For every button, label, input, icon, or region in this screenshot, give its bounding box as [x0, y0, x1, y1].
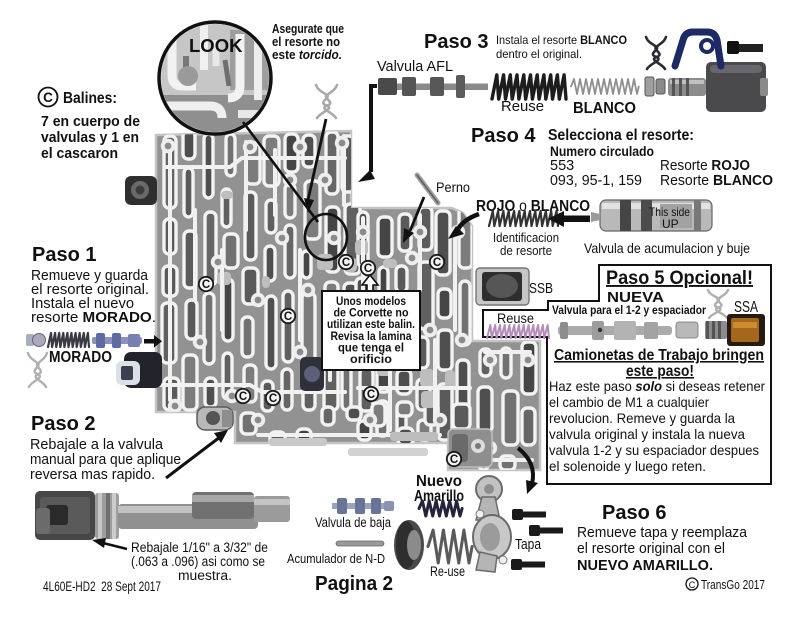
svg-text:el solenoide y luego reten.: el solenoide y luego reten. [549, 458, 706, 474]
svg-text:Resorte ROJO: Resorte ROJO [660, 158, 750, 174]
svg-text:dentro el original.: dentro el original. [496, 47, 582, 61]
svg-text:Camionetas de Trabajo bringen: Camionetas de Trabajo bringen [554, 347, 764, 364]
svg-text:Tapa: Tapa [515, 537, 542, 553]
svg-text:SSB: SSB [529, 280, 553, 297]
svg-text:valvula original y instala la: valvula original y instala la nueva [549, 426, 745, 442]
svg-text:valvula 1-2 y su espaciador de: valvula 1-2 y su espaciador despues [549, 442, 759, 458]
svg-text:TransGo 2017: TransGo 2017 [701, 578, 765, 592]
svg-text:Paso 1: Paso 1 [32, 244, 96, 266]
svg-text:que tenga el: que tenga el [338, 342, 404, 354]
svg-text:orificio: orificio [350, 354, 392, 366]
svg-text:BLANCO: BLANCO [573, 100, 636, 117]
svg-text:Balines:: Balines: [63, 90, 117, 107]
svg-text:reversa mas rapido.: reversa mas rapido. [30, 467, 155, 483]
svg-text:MORADO: MORADO [49, 349, 112, 366]
svg-text:Unos modelos: Unos modelos [336, 296, 406, 308]
svg-text:Asegurate que: Asegurate que [272, 22, 344, 36]
svg-text:Paso 4: Paso 4 [471, 125, 536, 147]
svg-text:Reuse: Reuse [501, 98, 544, 115]
svg-text:de resorte: de resorte [500, 243, 552, 258]
svg-text:Paso 5 Opcional!: Paso 5 Opcional! [606, 268, 753, 289]
svg-text:C: C [269, 393, 277, 405]
svg-text:el cambio de M1 a cualquier: el cambio de M1 a cualquier [549, 394, 709, 410]
svg-text:C: C [342, 257, 350, 269]
svg-text:Instala el resorte BLANCO: Instala el resorte BLANCO [496, 33, 627, 47]
svg-text:Valvula para el 1-2 y espaciad: Valvula para el 1-2 y espaciador [552, 303, 706, 317]
svg-text:Acumulador de N-D: Acumulador de N-D [287, 551, 385, 566]
svg-text:Reuse: Reuse [497, 310, 534, 326]
svg-text:7 en cuerpo de: 7 en cuerpo de [41, 113, 140, 130]
svg-text:Valvula de baja: Valvula de baja [315, 515, 391, 530]
svg-text:Numero circulado: Numero circulado [550, 144, 654, 159]
svg-text:el resorte original con el: el resorte original con el [577, 540, 725, 557]
svg-text:Rebajale 1/16" a 3/32" de: Rebajale 1/16" a 3/32" de [131, 540, 268, 555]
svg-text:muestra.: muestra. [178, 568, 232, 583]
svg-text:el cascaron: el cascaron [41, 145, 118, 162]
svg-text:Rebajale a la valvula: Rebajale a la valvula [30, 437, 164, 453]
svg-text:este torcido.: este torcido. [272, 48, 342, 62]
svg-text:Valvula AFL: Valvula AFL [377, 59, 453, 75]
svg-text:Valvula de acumulacion y buje: Valvula de acumulacion y buje [584, 240, 750, 256]
svg-text:C: C [450, 454, 458, 466]
svg-text:LOOK: LOOK [189, 35, 243, 56]
svg-text:el resorte no: el resorte no [272, 35, 340, 49]
svg-text:Revisa la lamina: Revisa la lamina [331, 331, 413, 343]
svg-text:C: C [689, 580, 696, 590]
svg-text:manual para que aplique: manual para que aplique [30, 452, 181, 468]
svg-text:Pagina 2: Pagina 2 [315, 573, 393, 595]
svg-text:de Corvette no: de Corvette no [334, 308, 409, 320]
svg-text:C: C [43, 90, 53, 105]
svg-text:NUEVO AMARILLO.: NUEVO AMARILLO. [577, 557, 713, 574]
svg-text:093, 95-1, 159: 093, 95-1, 159 [550, 173, 642, 189]
svg-text:C: C [239, 391, 247, 403]
svg-text:SSA: SSA [734, 299, 759, 316]
svg-text:Re-use: Re-use [430, 564, 465, 579]
svg-text:C: C [433, 257, 441, 269]
svg-text:revolucion. Remeve y guarda la: revolucion. Remeve y guarda la [549, 410, 735, 426]
svg-text:Remueve tapa y reemplaza: Remueve tapa y reemplaza [577, 524, 748, 541]
svg-text:Perno: Perno [436, 180, 470, 195]
svg-text:C: C [367, 389, 375, 401]
svg-text:C: C [364, 263, 372, 275]
svg-text:553: 553 [550, 158, 574, 174]
svg-text:4L60E-HD2 28 Sept 2017: 4L60E-HD2 28 Sept 2017 [43, 579, 161, 594]
svg-text:C: C [284, 311, 292, 323]
svg-text:Resorte BLANCO: Resorte BLANCO [660, 173, 773, 189]
svg-text:Haz este paso solo si deseas r: Haz este paso solo si deseas retener [549, 378, 765, 394]
svg-text:Selecciona el resorte:: Selecciona el resorte: [548, 127, 694, 144]
svg-text:C: C [202, 279, 210, 291]
svg-text:(.063 a .096) asi como se: (.063 a .096) asi como se [131, 554, 265, 569]
svg-text:Paso 6: Paso 6 [602, 502, 666, 524]
svg-text:Paso 2: Paso 2 [31, 413, 95, 435]
svg-text:utilizan este balin.: utilizan este balin. [327, 319, 415, 331]
svg-text:valvulas y 1 en: valvulas y 1 en [41, 129, 139, 146]
svg-text:resorte MORADO.: resorte MORADO. [31, 310, 156, 326]
svg-text:Paso 3: Paso 3 [424, 31, 488, 53]
svg-text:UP: UP [662, 217, 679, 231]
